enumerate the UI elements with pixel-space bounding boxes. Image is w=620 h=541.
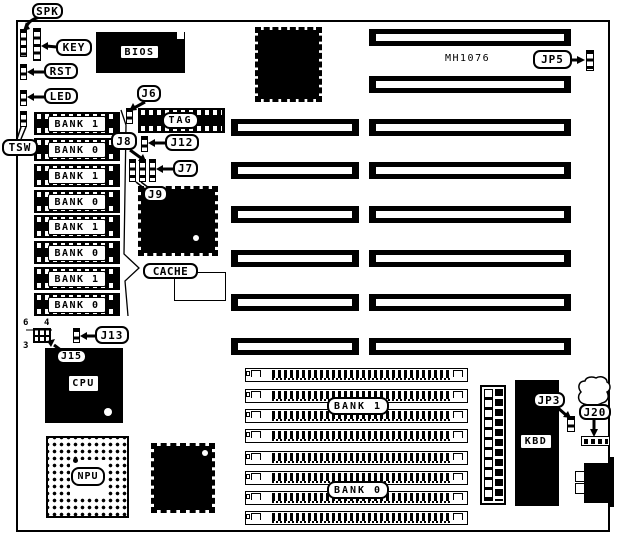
j7-arrowhead (156, 165, 163, 173)
callout-j15: J15 (56, 349, 87, 364)
battery-outline (579, 377, 610, 406)
callout-spk: SPK (32, 3, 63, 19)
tag-label: TAG (162, 112, 199, 129)
dip-bank-label: BANK 1 (48, 219, 106, 235)
callout-j7: J7 (173, 160, 198, 177)
callout-led: LED (44, 88, 78, 104)
cpu-label: CPU (68, 375, 99, 392)
tsw-leader-1 (17, 127, 21, 139)
key-arrowhead (41, 42, 48, 50)
callout-jp5: JP5 (533, 50, 572, 69)
j13-arrowhead (80, 332, 87, 340)
dip-bank-label: BANK 1 (48, 168, 106, 184)
dip-bank-label: BANK 0 (48, 194, 106, 210)
npu-pin1-dot (73, 458, 78, 463)
tsw-leader-2 (21, 127, 26, 139)
callout-j9: J9 (143, 186, 168, 202)
callout-tsw: TSW (2, 139, 38, 156)
j8-leader (130, 150, 141, 158)
j15-pin3-number: 3 (23, 341, 28, 351)
dip-bank-label: BANK 0 (48, 142, 106, 158)
callout-jp3: JP3 (533, 392, 565, 408)
motherboard-jumper-diagram: SPK KEY RST LED TSW J6 J8 J12 J7 J9 CACH… (0, 0, 620, 541)
callout-j12: J12 (165, 134, 199, 151)
callout-key: KEY (56, 39, 92, 56)
rst-arrowhead (27, 68, 34, 76)
dip-bank-label: BANK 0 (48, 245, 106, 261)
callout-rst: RST (44, 63, 78, 79)
led-arrowhead (27, 93, 34, 101)
kbd-label: KBD (520, 434, 552, 449)
jp3-leader (558, 408, 566, 415)
jp5-arrowhead (577, 56, 585, 64)
callout-j13: J13 (95, 326, 129, 344)
callout-cache: CACHE (143, 263, 198, 279)
j15-pin6-number: 6 (23, 318, 28, 328)
dip-bank-label: BANK 1 (48, 271, 106, 287)
simm-bank1-label: BANK 1 (327, 397, 389, 415)
callout-j20: J20 (579, 404, 611, 420)
dip-bank-label: BANK 0 (48, 297, 106, 313)
j15-pin4-number: 4 (44, 318, 49, 328)
dip-bank-label: BANK 1 (48, 116, 106, 132)
bios-label: BIOS (120, 45, 159, 59)
npu-label: NPU (71, 467, 105, 486)
j20-arrowhead (590, 429, 598, 437)
simm-bank0-label: BANK 0 (327, 481, 389, 499)
callout-j8: J8 (111, 132, 137, 150)
callout-j6: J6 (137, 85, 161, 102)
chipset-part-number: MH1076 (445, 53, 490, 64)
j6-leader (134, 102, 145, 108)
j12-arrowhead (148, 139, 155, 147)
